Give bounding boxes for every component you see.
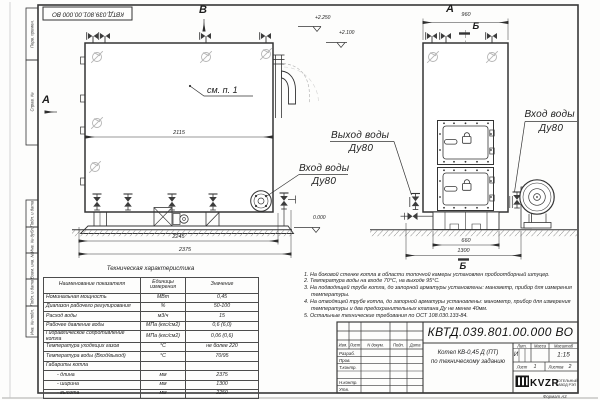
row-units: МПа (кгс/см2) [141,331,186,343]
sig-prov: Пров. [339,358,351,363]
top-valves-side-view [87,32,271,43]
boiler-side-view [81,32,319,233]
outlet-callout-line1: Выход воды [331,131,389,141]
note-4: 4. На отводящей трубе котла, до запорной… [304,299,578,313]
elevation-2250: +2.250 [315,16,330,21]
row-units: МПа (кгс/см2) [141,321,186,330]
row-units: м3/ч [141,312,186,321]
row-value: 0,06 (0,6) [186,331,259,343]
rev-header-data: Дата [410,342,421,347]
company-logo-text: KVZR [530,378,559,389]
document-title: Котел КВ-0,45 Д (ПТ) по техническому зад… [424,349,512,367]
sig-tkontr: Т.контр. [339,365,357,370]
note-1: 1. На боковой стенке котла в области топ… [304,272,578,279]
table-row: - ширинамм1300 [44,380,259,389]
top-stamp-designation: КВТД.039.801.00.000 ВО [52,10,124,17]
row-value: 50-100 [186,302,259,311]
title-block-designation: КВТД.039.801.00.000 ВО [424,325,577,339]
table-row: - высотамм2250 [44,389,259,398]
col-header-units: Единицы измерения [141,277,186,293]
inlet-piping-and-fan [510,180,554,228]
lower-furnace-door [438,168,495,211]
row-value: 2250 [186,389,259,398]
frame-col-label-5: Взам. инв. № [30,253,35,279]
row-units: мм [141,389,186,398]
row-units: °С [141,342,186,351]
boiler-base-end [433,212,499,230]
row-value: 0,45 [186,293,259,302]
lit-value: И [514,352,518,358]
row-name: - длина [44,371,141,380]
note-5: 5. Остальные технические требования по О… [304,313,578,320]
row-name: Расход воды [44,312,141,321]
technical-notes: 1. На боковой стенке котла в области топ… [304,272,578,320]
inlet-left-callout-line2: Ду80 [312,177,336,187]
row-units: мм [141,380,186,389]
sig-razrab: Разраб. [339,351,355,356]
scale-header: Масштаб [554,343,573,348]
document-title-line2: по техническому заданию [424,358,512,367]
dim-2375: 2375 [179,248,191,254]
view-b-label: В [199,5,207,16]
inlet-right-callout-line2: Ду80 [539,124,563,134]
sig-nkontr: Н.контр. [339,380,358,385]
format-label: Формат А3 [543,394,567,399]
inlet-flange-side-view [251,191,272,212]
company-name-line2: ЗАВОД РЭП [556,383,578,388]
row-name: - высота [44,389,141,398]
dim-1300: 1300 [457,249,469,255]
sheet-label: Лист [517,364,528,369]
dim-660: 660 [461,239,470,245]
frame-col-label-6: Подп. и дата [30,279,35,305]
scale-value: 1:15 [557,352,570,359]
col-header-value: Значение [186,277,259,293]
drawing-sheet: КВТД.039.801.00.000 ВО Перв. примен. Спр… [0,0,600,400]
row-units: мм [141,371,186,380]
note-3: 3. На подводящей трубе котла, до запорно… [304,285,578,299]
frame-col-label-4: Инв. № дубл. [30,227,35,253]
section-b-bottom-label: Б [460,262,467,272]
frame-col-label-2: Справ. № [30,92,35,111]
row-name: Рабочее давление воды [44,321,141,330]
kvzr-logo-icon [516,376,530,388]
view-a-title: А [446,4,454,15]
frame-col-label-3: Подп. и дата [30,200,35,226]
sheets-value: 2 [569,364,572,370]
right-corner-valve [280,193,296,226]
row-units: МВт [141,293,186,302]
elevation-zero: 0.000 [313,216,326,221]
dim-960: 960 [461,13,470,19]
table-row: Расход водым3/ч15 [44,312,259,321]
row-name: Температура уходящих газов [44,342,141,351]
row-name: Диапазон рабочего регулирования [44,302,141,311]
table-row: Диапазон рабочего регулирования%50-100 [44,302,259,311]
inlet-left-callout-line1: Вход воды [299,164,349,174]
row-units [141,361,186,370]
upper-furnace-door [438,121,495,165]
sheets-label: Листов [549,364,564,369]
row-name: - ширина [44,380,141,389]
rev-header-list: Лист [350,342,361,347]
row-value: 0,6 (6,0) [186,321,259,330]
ground-line [72,230,577,237]
row-name: Номинальная мощность [44,293,141,302]
table-row: Температура воды (Вход/выход)°С70/95 [44,352,259,361]
row-value: не более 220 [186,342,259,351]
row-value: 70/95 [186,352,259,361]
table-row: Температура уходящих газов°Сне более 220 [44,342,259,351]
tech-table-header: Наименование показателя Единицы измерени… [44,277,259,293]
row-value: 1300 [186,380,259,389]
gas-outlet-duct [273,55,319,118]
table-row: Рабочее давление водыМПа (кгс/см2)0,6 (6… [44,321,259,330]
dim-2245: 2245 [172,235,184,241]
row-value: 2375 [186,371,259,380]
dim-2115: 2115 [173,131,185,137]
outlet-callout-line2: Ду80 [349,144,373,154]
rev-header-izm: Изм. [339,342,348,347]
frame-col-label-7: Инв. № подл. [30,309,35,335]
row-units: °С [141,352,186,361]
tech-table: Наименование показателя Единицы измерени… [43,277,259,400]
see-note-text: см. п. 1 [207,86,238,95]
table-row: Номинальная мощностьМВт0,45 [44,293,259,302]
document-title-line1: Котел КВ-0,45 Д (ПТ) [424,349,512,358]
table-row: - длинамм2375 [44,371,259,380]
view-a-arrow-label: А [42,95,50,106]
mass-header: Масса [534,343,546,348]
col-header-name: Наименование показателя [44,277,141,293]
frame-col-label-1: Перв. примен. [30,20,35,48]
rev-header-podp: Подп. [393,342,404,347]
row-name: Габариты котла [44,361,141,370]
row-value [186,361,259,370]
section-b-top-label: Б [473,22,480,32]
table-row: Габариты котла [44,361,259,370]
inlet-right-callout-line1: Вход воды [525,110,575,120]
sheet-value: 1 [534,364,537,370]
row-units: % [141,302,186,311]
row-name: Температура воды (Вход/выход) [44,352,141,361]
table-row: Гидравлическое сопротивление котлаМПа (к… [44,331,259,343]
boiler-end-view [401,19,555,260]
sig-utv: Утв. [339,387,349,392]
lit-header: Лит. [517,343,527,348]
rev-header-ndocum: N докум. [367,342,384,347]
company-name: КОТЕЛЬНЫЙ ЗАВОД РЭП [556,379,578,388]
elevation-2100: +2.100 [339,31,354,36]
row-name: Гидравлическое сопротивление котла [44,331,141,343]
row-value: 15 [186,312,259,321]
tech-table-title: Техническая характеристика [43,265,258,272]
